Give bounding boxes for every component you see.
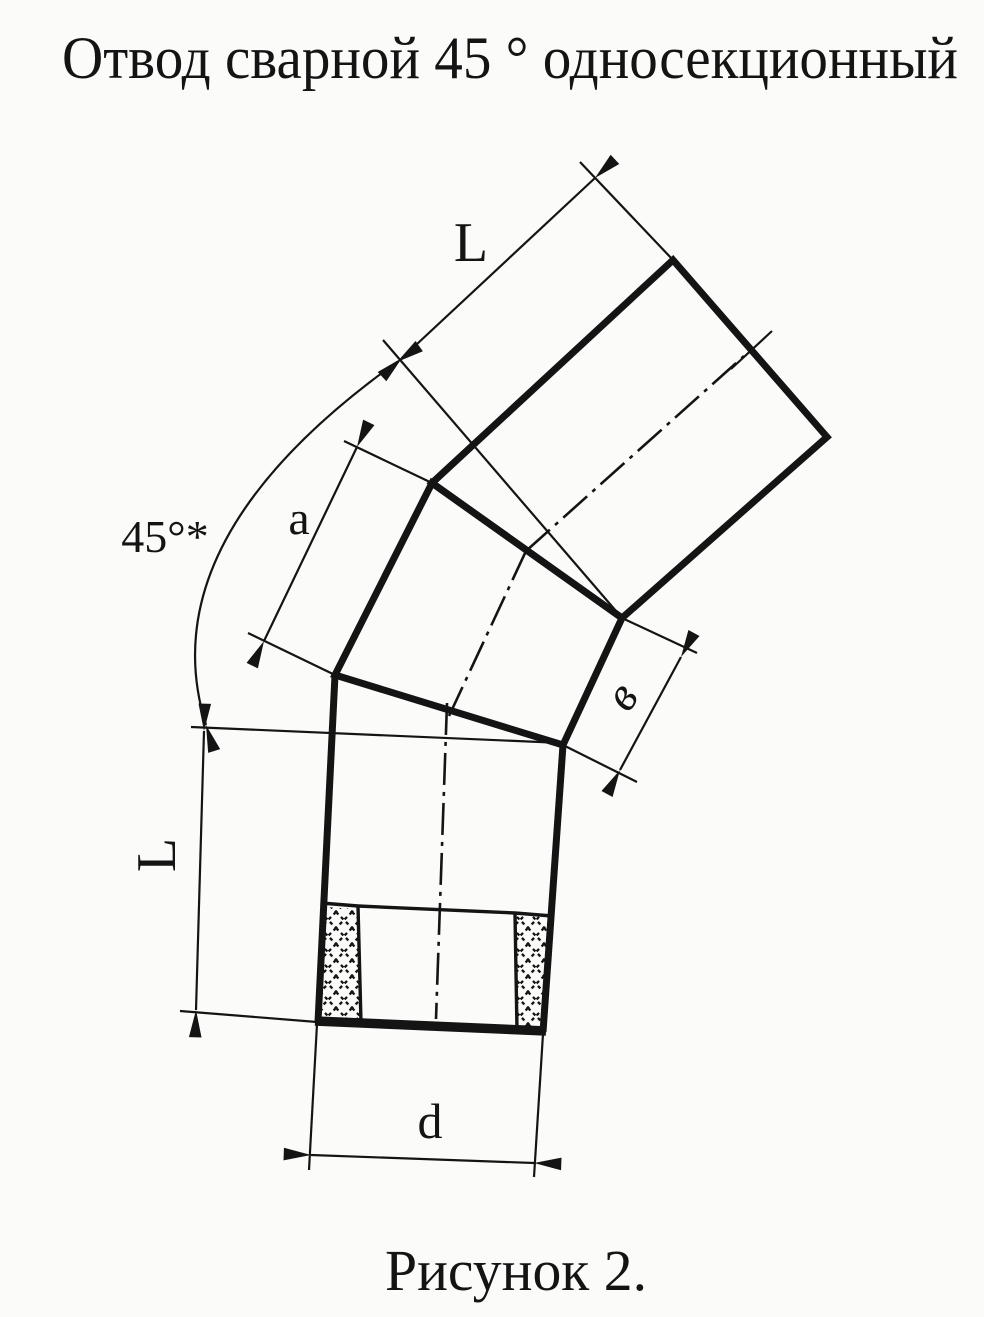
ext-upper-weld-plane bbox=[383, 340, 622, 618]
dim-line-a bbox=[264, 447, 357, 641]
ext-upper-end-face bbox=[580, 162, 673, 260]
ext-a-bottom bbox=[248, 633, 335, 675]
drawing-title: Отвод сварной 45 ° односекционный bbox=[62, 25, 958, 91]
dim-label-v: в bbox=[594, 673, 649, 720]
bore-edge-line bbox=[358, 906, 515, 913]
elbow-body bbox=[315, 260, 827, 1032]
ext-lower-end-horizontal bbox=[180, 1011, 317, 1022]
dim-label-d: d bbox=[418, 1093, 443, 1149]
ext-d-right bbox=[534, 1034, 543, 1177]
centerline-upper-pipe bbox=[526, 356, 744, 551]
wall-hatch-right bbox=[516, 915, 550, 1030]
ext-d-left bbox=[309, 1024, 317, 1170]
dim-label-a: a bbox=[288, 492, 309, 545]
upper-pipe-outline bbox=[432, 260, 827, 618]
ext-v-bottom bbox=[563, 745, 637, 782]
dim-label-L-upper: L bbox=[454, 212, 488, 274]
ext-v-top bbox=[622, 618, 697, 653]
dim-line-d bbox=[311, 1155, 534, 1163]
dim-label-angle: 45°* bbox=[121, 511, 208, 562]
lower-pipe-end-edge bbox=[315, 1021, 546, 1031]
wall-hatch-left bbox=[320, 907, 360, 1021]
technical-drawing: Отвод сварной 45 ° односекционный bbox=[0, 0, 984, 1317]
centerline-elbow-section bbox=[449, 551, 526, 716]
dim-label-L-lower: L bbox=[126, 838, 188, 872]
figure-caption: Рисунок 2. bbox=[385, 1238, 647, 1303]
centerline-lower-pipe bbox=[436, 703, 447, 1019]
elbow-section-outline bbox=[335, 483, 622, 745]
scanned-page: Отвод сварной 45 ° односекционный bbox=[0, 0, 984, 1317]
dim-line-L-upper bbox=[402, 178, 595, 358]
wall-inner-right bbox=[515, 913, 517, 1031]
dim-line-L-lower bbox=[196, 731, 204, 1010]
dimension-lines bbox=[195, 178, 681, 1163]
